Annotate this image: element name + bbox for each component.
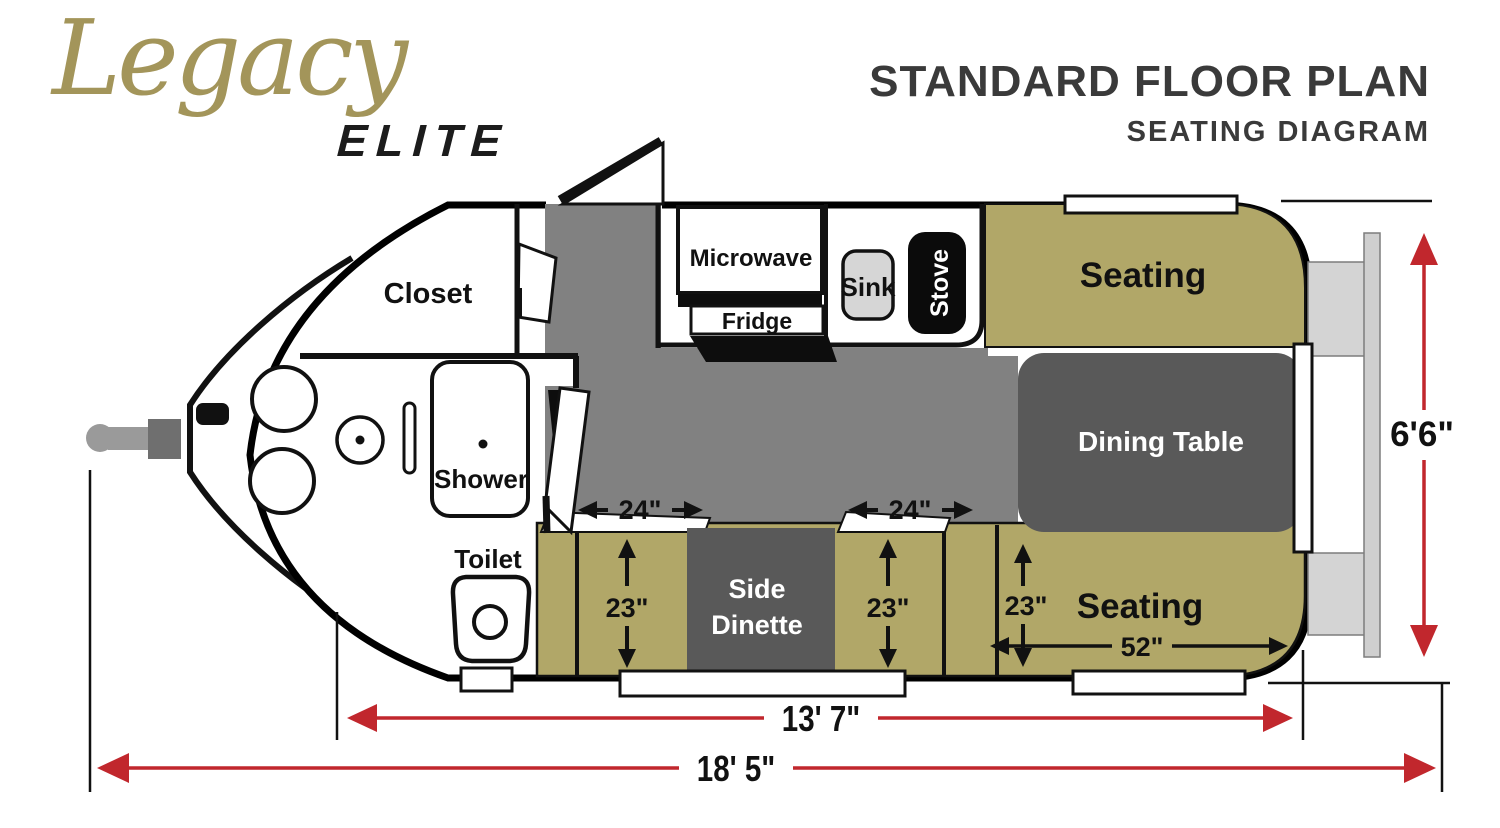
cabinet-shadow-panel — [690, 336, 837, 362]
dim-rear-seat-width-label: 52" — [1121, 632, 1164, 662]
hitch-shaft — [108, 427, 152, 450]
brand-logo-model: ELITE — [332, 118, 516, 163]
rear-bumper — [1308, 233, 1380, 657]
bumper-block-top — [1308, 262, 1366, 356]
window-bottom-left — [461, 668, 512, 691]
dim-body-width: 6'6" — [1390, 233, 1454, 657]
page-subtitle: SEATING DIAGRAM — [869, 116, 1430, 149]
side-dinette-label-2: Dinette — [711, 610, 803, 640]
tongue-jack-box — [196, 403, 229, 425]
dim-box-length-label: 13' 7" — [782, 698, 860, 738]
closet-label: Closet — [384, 278, 473, 310]
toilet-label: Toilet — [454, 544, 522, 574]
dim-box-length: 13' 7" — [347, 698, 1293, 738]
rear-seating-label: Seating — [1077, 587, 1203, 626]
hitch-ball — [86, 424, 114, 452]
window-bottom-right — [1073, 671, 1245, 694]
dim-bench-depth-1-label: 23" — [606, 593, 649, 623]
stove-label: Stove — [926, 249, 954, 317]
dining-table-label: Dining Table — [1078, 426, 1244, 457]
bathroom-door-edge — [546, 496, 547, 533]
bumper-block-bottom — [1308, 553, 1366, 635]
propane-tank-2 — [250, 449, 314, 513]
floor-plan-stage: Legacy ELITE STANDARD FLOOR PLAN SEATING… — [0, 0, 1500, 823]
propane-tank-1 — [252, 367, 316, 431]
closet-door-open — [518, 244, 556, 322]
toilet-bowl — [474, 606, 506, 638]
side-dinette-label-1: Side — [728, 574, 785, 604]
front-seating-label: Seating — [1080, 256, 1206, 295]
bathroom-vent-slot — [404, 403, 415, 473]
window-rear-wall — [1294, 344, 1312, 552]
title-block: STANDARD FLOOR PLAN SEATING DIAGRAM — [869, 58, 1430, 149]
dim-bench-depth-3-label: 23" — [1005, 591, 1048, 621]
tow-hitch — [86, 419, 181, 459]
dim-aisle-front-label: 24" — [619, 495, 662, 525]
bathroom-fan-center — [356, 436, 365, 445]
dim-bench-depth-2-label: 23" — [867, 593, 910, 623]
brand-logo-script: Legacy — [52, 6, 404, 110]
dim-overall-length-label: 18' 5" — [697, 748, 775, 788]
shower-drain — [479, 440, 488, 449]
window-top — [1065, 196, 1237, 213]
dim-body-width-label: 6'6" — [1390, 415, 1454, 454]
dim-aisle-rear-label: 24" — [889, 495, 932, 525]
window-bottom-center — [620, 671, 905, 696]
page-title: STANDARD FLOOR PLAN — [869, 58, 1430, 106]
microwave-label: Microwave — [690, 245, 813, 272]
shower-label: Shower — [434, 464, 528, 494]
fridge-label: Fridge — [722, 308, 792, 334]
hitch-coupler — [148, 419, 181, 459]
sink-label: Sink — [841, 272, 896, 302]
bumper-bar — [1364, 233, 1380, 657]
dim-overall-length: 18' 5" — [97, 748, 1436, 788]
